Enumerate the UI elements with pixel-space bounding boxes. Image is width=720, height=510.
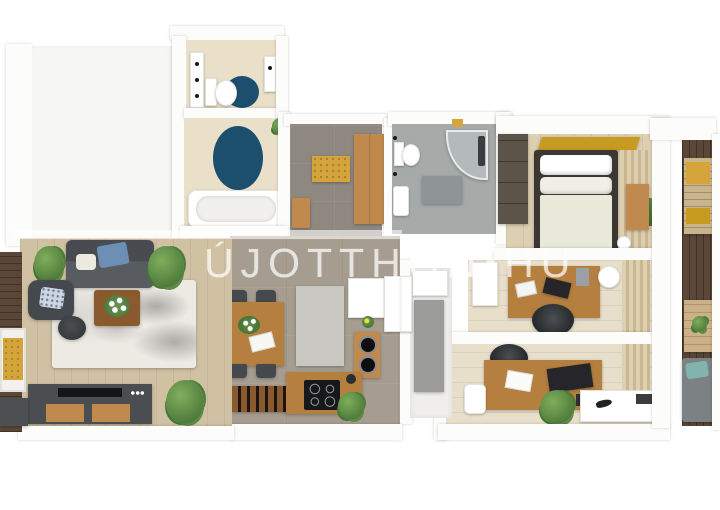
- floorplan-render: ÚJOTTHON HU: [0, 0, 720, 510]
- hall-wardrobe: [354, 134, 386, 224]
- study-side-table: [598, 266, 620, 288]
- console-drawer: [46, 404, 84, 422]
- bathroom2-fitting: [393, 136, 397, 140]
- console-drawer: [92, 404, 130, 422]
- empty-room: [32, 46, 172, 238]
- wc-right-wall: [276, 36, 288, 122]
- bedroom-desk: [626, 184, 649, 230]
- wc-shelf: [264, 56, 276, 92]
- toilet-bowl: [215, 80, 237, 106]
- tv: [58, 388, 122, 397]
- bed-pillows: [540, 155, 612, 175]
- wc-vanity-knob: [195, 94, 199, 98]
- bathroom2-sink: [393, 186, 409, 216]
- kitchen-sink-fitting: [346, 374, 356, 384]
- table-flowers: [238, 316, 260, 334]
- watermark-text-left: ÚJOTTHON: [204, 240, 483, 287]
- bath-mat: [422, 176, 462, 204]
- dining-chair: [256, 364, 276, 378]
- balcony-bench-cushion: [686, 162, 710, 184]
- wine-rack: [232, 386, 288, 412]
- study-bottom-wall: [436, 332, 664, 344]
- study-monitor: [576, 268, 589, 286]
- living-plant-left: [34, 246, 64, 282]
- office-plant: [540, 390, 574, 424]
- dining-bottom-wall: [230, 424, 402, 440]
- bedroom-top-wall: [496, 116, 670, 136]
- bathroom-rug: [213, 126, 263, 190]
- balcony-planter: [0, 398, 28, 426]
- watermark-dot: [486, 259, 495, 268]
- dining-table: [224, 302, 284, 366]
- bathroom2-shelf-item: [452, 119, 463, 127]
- watermark: ÚJOTTHON HU: [204, 238, 577, 288]
- gold-throw: [538, 137, 640, 150]
- wc-vanity-knob: [195, 78, 199, 82]
- wc-shelf-bottle: [268, 66, 272, 70]
- kitchen-runner-rug: [296, 286, 344, 366]
- pantry-panel: [414, 300, 444, 392]
- living-plant-right: [148, 246, 184, 288]
- bathroom-right-wall: [278, 112, 290, 236]
- office-curtain: [622, 344, 650, 390]
- bedroom-wardrobe: [498, 134, 528, 224]
- wc-vanity-knob: [195, 62, 199, 66]
- sofa-pillow: [76, 254, 96, 270]
- outer-wall-left: [6, 44, 32, 246]
- bed-pillows-row2: [540, 177, 612, 194]
- window-wall-right: [652, 118, 670, 428]
- office-bin: [464, 384, 486, 414]
- balcony-outer-rail: [712, 134, 720, 430]
- doormat: [312, 156, 350, 182]
- console-candles: [130, 390, 144, 396]
- bathtub-basin: [196, 196, 276, 222]
- study-curtain: [622, 260, 650, 334]
- bathroom2-fitting: [393, 172, 397, 176]
- watermark-dot: [486, 245, 495, 254]
- cooktop: [304, 380, 340, 410]
- oven: [359, 336, 377, 354]
- living-plant-bottom: [166, 380, 204, 424]
- kitchen-plant: [338, 392, 364, 420]
- kitchen-flowers-yellow: [362, 316, 374, 328]
- balcony-top-wall: [650, 118, 716, 140]
- coffee-table-flowers: [104, 295, 130, 317]
- shower-column: [478, 136, 485, 166]
- hall-bench: [292, 198, 310, 228]
- armchair-pillow: [39, 286, 66, 309]
- balcony-bench-throw: [686, 208, 710, 224]
- balcony-chair-cushion: [3, 338, 23, 380]
- toilet2-bowl: [402, 144, 420, 166]
- pouf: [58, 316, 86, 340]
- watermark-dots: [486, 242, 495, 284]
- office-bottom-wall: [438, 424, 670, 440]
- lounger-pillow: [685, 361, 709, 380]
- balcony-plant: [692, 316, 707, 332]
- living-bottom-wall: [18, 426, 234, 440]
- wc-top-wall: [170, 26, 284, 40]
- watermark-dot: [486, 273, 495, 282]
- watermark-text-right: HU: [504, 240, 577, 287]
